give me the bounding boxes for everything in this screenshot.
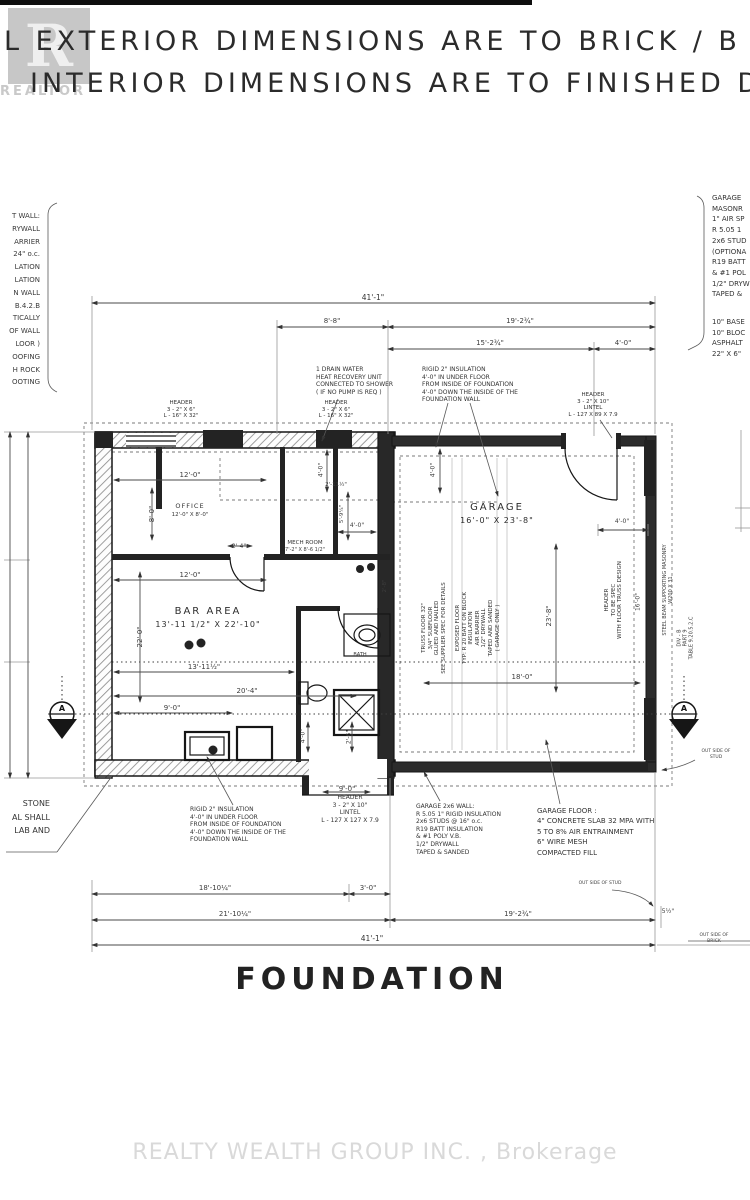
note-header-bottom: HEADER 3 - 2" X 10" LINTEL L - 127 X 127… [321, 794, 379, 824]
dim-bay-2-6: 2'-6" [346, 730, 353, 744]
dim-2-11: 2'-11½" [325, 482, 347, 488]
note-garage-floor: GARAGE FLOOR : 4" CONCRETE SLAB 32 MPA W… [537, 806, 654, 858]
room-bar-size: 13'-11 1/2" X 22'-10" [155, 620, 260, 629]
dim-bot-19-2: 19'-2¾" [504, 910, 532, 918]
header-line2: INTERIOR DIMENSIONS ARE TO FINISHED DR [30, 68, 750, 99]
note-drain-water: 1 DRAIN WATER HEAT RECOVERY UNIT CONNECT… [316, 366, 393, 396]
dim-opening-9-0: 9'-0" [339, 785, 356, 793]
dim-5-9: 5'-9¼" [339, 505, 345, 523]
dim-bar-w: 13'-11½" [188, 663, 220, 671]
note-header-right: HEADER 3 - 2" X 10" LINTEL L - 127 X 89 … [568, 392, 617, 418]
dim-top-overall: 41'-1" [362, 293, 385, 302]
dim-door-2-8: 2'-8" [382, 579, 388, 592]
dim-garage-4b: 4'-0" [615, 518, 629, 525]
fixtures [185, 563, 391, 760]
note-steel-beam: STEEL BEAM SUPPORTING MASONRY W200 X 31 [662, 544, 674, 635]
dim-top-19-2: 19'-2¾" [506, 317, 534, 325]
note-stone-fragment: STONE AL SHALL LAB AND [12, 797, 50, 838]
room-mech-size: 7'-2" X 8'-6 1/2" [285, 547, 325, 553]
sheet-border-top [0, 0, 532, 5]
dim-top-8-8: 8'-8" [324, 317, 341, 325]
note-header-mid: HEADER 3 - 2" X 6" L - 16" X 32" [319, 400, 354, 420]
dim-top-4-0: 4'-0" [615, 339, 632, 347]
dim-garage-18-0: 18'-0" [511, 673, 532, 681]
dim-bot-5-half: 5½" [662, 908, 674, 915]
room-bath-name: BATH [353, 652, 366, 658]
dim-garage-16-0: 16'-0" [635, 593, 642, 611]
dim-bot-21-10: 21'-10¼" [219, 910, 251, 918]
right-margin-notes-top: GARAGE MASONR 1" AIR SP R 5.05 1 2x6 STU… [712, 193, 750, 300]
room-garage-name: GARAGE [470, 502, 524, 513]
dim-2-4: 2'-4" [232, 543, 246, 550]
section-marker-a-right: A [681, 704, 687, 713]
header-line1: L EXTERIOR DIMENSIONS ARE TO BRICK / B [4, 26, 741, 57]
note-rigid-insulation-top: RIGID 2" INSULATION 4'-0" IN UNDER FLOOR… [422, 366, 518, 404]
dim-hall-12: 12'-0" [179, 571, 200, 579]
note-exposed-floor: EXPOSED FLOOR TYP: R 20 BATT ON BLOCK IN… [455, 592, 501, 664]
note-out-side-of-stud-bottom: OUT SIDE OF STUD [579, 881, 622, 887]
note-header-vertical: HEADER TO BE SPEC WITH FLOOR TRUSS DESIG… [604, 561, 624, 639]
room-garage-size: 16'-0" X 23'-8" [460, 516, 534, 525]
section-marker-a-left: A [59, 704, 65, 713]
room-office-size: 12'-0" X 8'-0" [172, 512, 209, 519]
room-mech-name: MECH ROOM [287, 540, 322, 547]
dim-9-0: 9'-0" [164, 704, 181, 712]
dim-bot-overall: 41'-1" [361, 934, 384, 943]
dim-20-4: 20'-4" [236, 687, 257, 695]
dim-garage-23-8: 23'-8" [545, 605, 553, 626]
foundation-plan-sheet: R REALTOR L EXTERIOR DIMENSIONS ARE TO B… [0, 0, 750, 1200]
dim-bot-3-0: 3'-0" [360, 884, 377, 892]
dim-bar-h: 22'-0" [136, 626, 144, 647]
room-office-name: OFFICE [175, 503, 204, 511]
dim-garage-4a: 4'-0" [430, 463, 437, 477]
right-margin-notes-bottom: 10" BASE 10" BLOC ASPHALT 22" X 6" [712, 317, 745, 360]
left-margin-notes: T WALL: RYWALL ARRIER 24" o.c. LATION LA… [9, 210, 40, 389]
note-garage-wall: GARAGE 2x6 WALL: R 5.05 1" RIGID INSULAT… [416, 803, 501, 856]
drawing-title: FOUNDATION [235, 962, 509, 997]
dim-office-h: 8'-0" [148, 506, 156, 523]
dim-office-w: 12'-0" [179, 471, 200, 479]
room-bar-name: BAR AREA [175, 606, 242, 617]
note-rigid-insulation-bottom: RIGID 2" INSULATION 4'-0" IN UNDER FLOOR… [190, 806, 286, 844]
dim-bay-4-0: 4'-0" [300, 729, 307, 743]
dim-top-15-2: 15'-2¾" [476, 339, 504, 347]
note-header-left: HEADER 3 - 2" X 6" L - 16" X 32" [164, 400, 199, 420]
note-truss-floor: TRUSS FLOOR 32" 3/4" SUBFLOOR GLUED AND … [421, 582, 447, 674]
dim-mech-4b: 4'-0" [350, 522, 364, 529]
dim-mech-4a: 4'-0" [318, 463, 325, 477]
note-code-reference: DIV - B PART 9 TABLE 9.20.5.2.C [677, 617, 696, 660]
note-out-side-of-brick: OUT SIDE OF BRICK [696, 933, 732, 944]
dim-bot-18-10: 18'-10¼" [199, 884, 231, 892]
brokerage-watermark: REALTY WEALTH GROUP INC. , Brokerage [132, 1140, 617, 1165]
note-out-side-of-stud-right: OUT SIDE OF STUD [699, 749, 733, 760]
